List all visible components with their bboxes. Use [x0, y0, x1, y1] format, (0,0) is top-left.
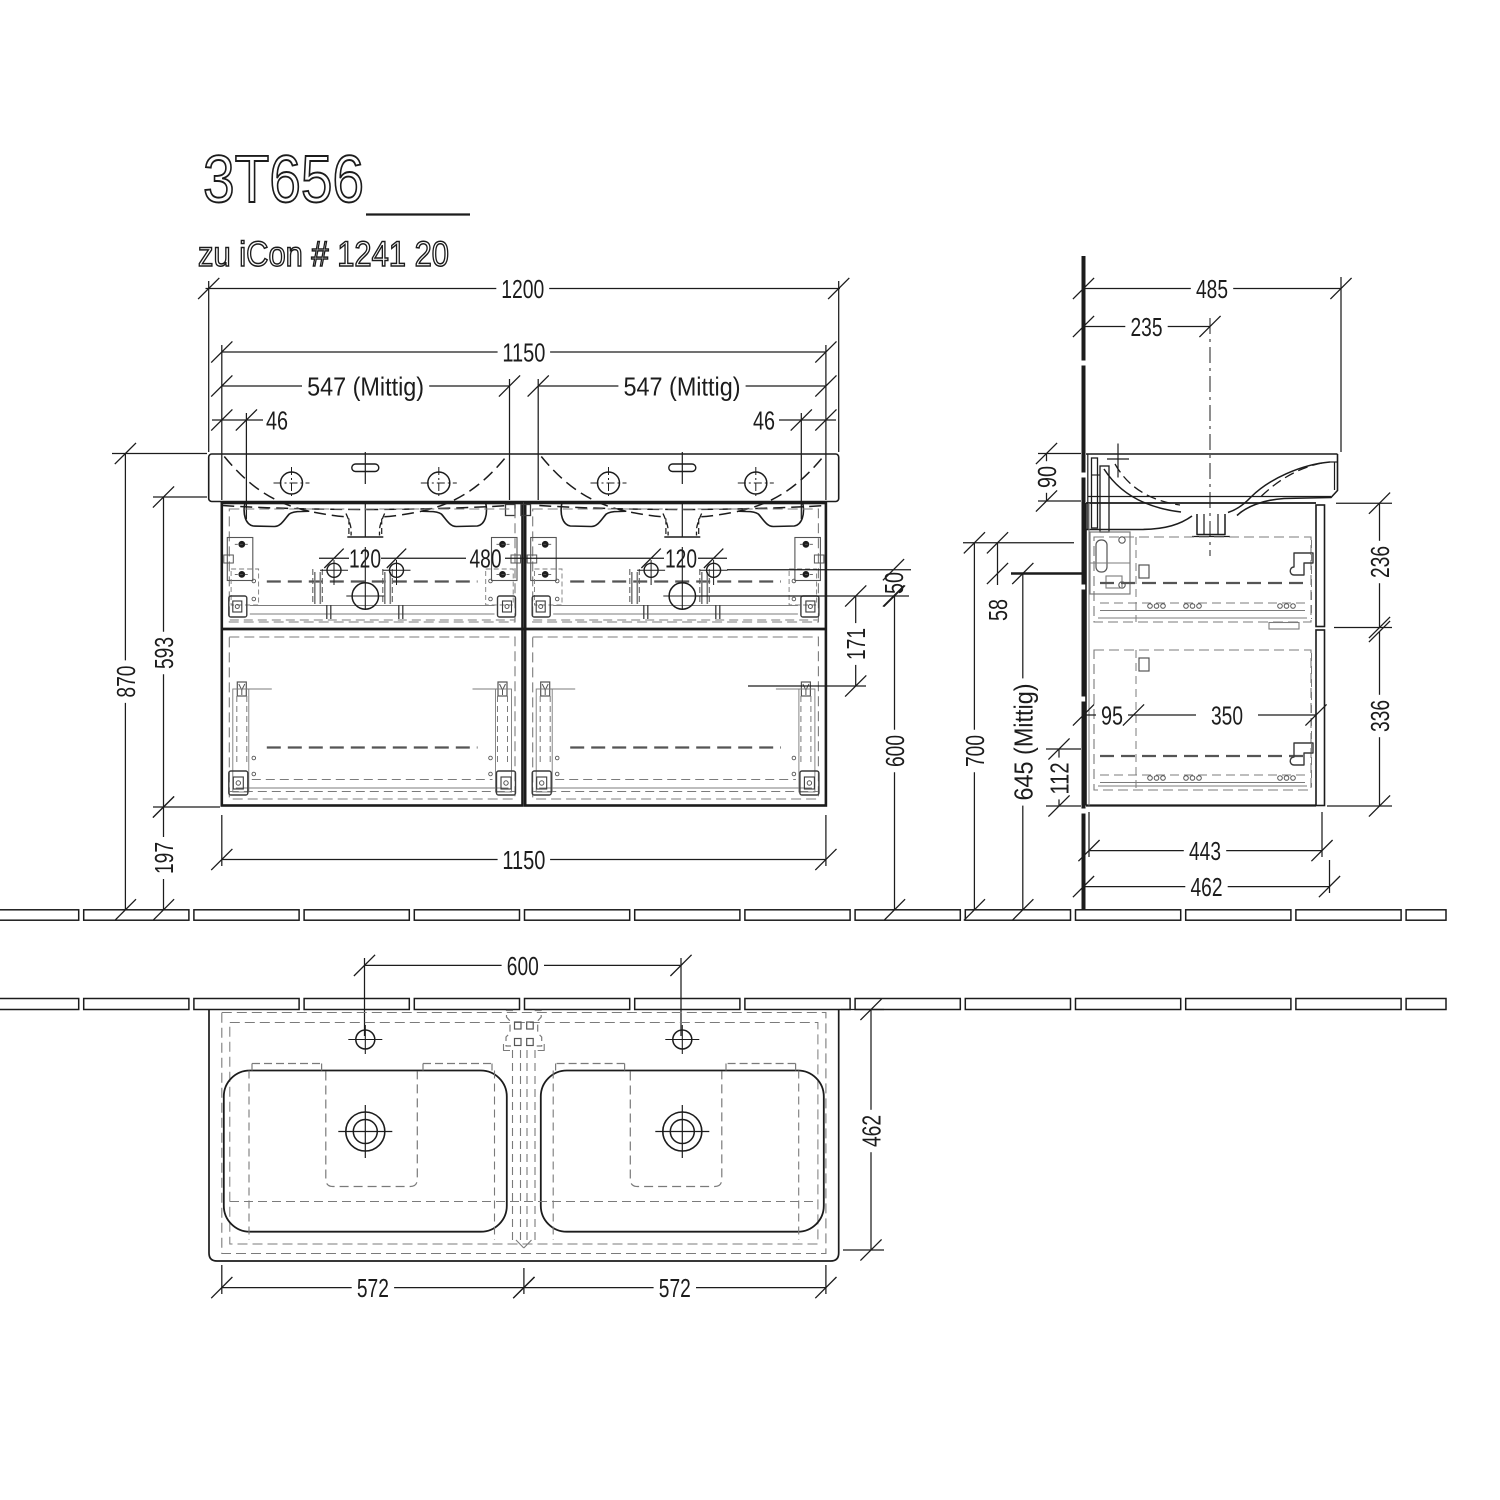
svg-text:350: 350 [1211, 701, 1243, 731]
svg-text:593: 593 [149, 637, 179, 669]
svg-text:700: 700 [960, 735, 990, 767]
svg-text:600: 600 [507, 951, 539, 981]
svg-text:1150: 1150 [502, 338, 545, 368]
svg-text:90: 90 [1032, 466, 1062, 488]
svg-text:58: 58 [983, 599, 1013, 621]
svg-text:112: 112 [1045, 763, 1075, 795]
svg-text:336: 336 [1365, 700, 1395, 732]
svg-text:547 (Mittig): 547 (Mittig) [624, 372, 741, 402]
svg-text:235: 235 [1131, 312, 1163, 342]
svg-text:572: 572 [357, 1273, 389, 1303]
svg-text:46: 46 [266, 406, 288, 436]
svg-text:95: 95 [1101, 701, 1123, 731]
svg-text:3T656: 3T656 [203, 142, 364, 217]
svg-text:1150: 1150 [502, 845, 545, 875]
svg-text:485: 485 [1196, 274, 1228, 304]
svg-text:197: 197 [149, 842, 179, 874]
svg-text:870: 870 [111, 666, 141, 698]
svg-text:547 (Mittig): 547 (Mittig) [307, 372, 424, 402]
svg-text:50: 50 [879, 572, 909, 594]
svg-text:46: 46 [753, 406, 775, 436]
svg-text:572: 572 [659, 1273, 691, 1303]
svg-text:645 (Mittig): 645 (Mittig) [1008, 684, 1038, 801]
svg-text:zu iCon # 1241 20: zu iCon # 1241 20 [198, 235, 449, 274]
svg-text:462: 462 [1191, 872, 1223, 902]
svg-text:120: 120 [665, 544, 697, 574]
svg-text:480: 480 [470, 544, 502, 574]
svg-text:462: 462 [857, 1115, 887, 1147]
svg-text:1200: 1200 [501, 274, 544, 304]
svg-text:600: 600 [880, 735, 910, 767]
svg-text:171: 171 [841, 628, 871, 660]
svg-text:236: 236 [1365, 546, 1395, 578]
svg-text:443: 443 [1189, 836, 1221, 866]
